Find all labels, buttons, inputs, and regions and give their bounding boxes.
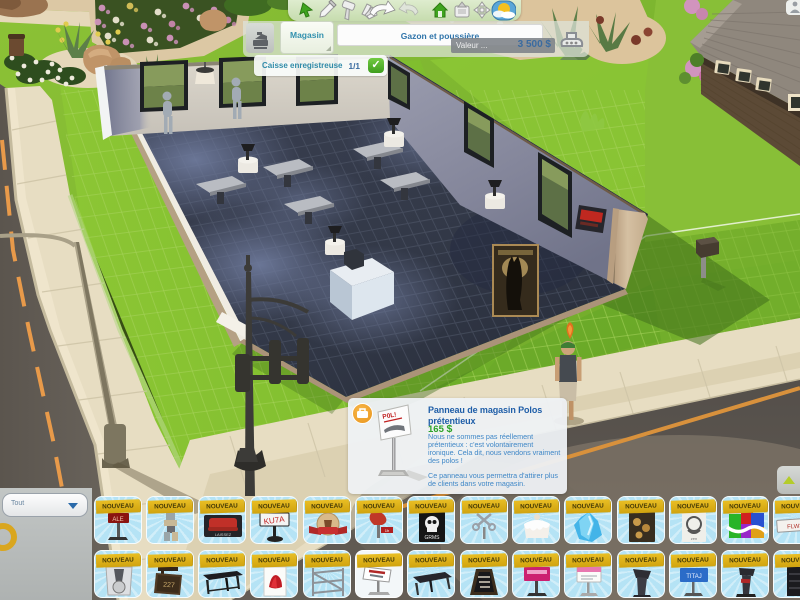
svg-text:ALE: ALE (112, 517, 123, 523)
svg-text:FLW3C: FLW3C (787, 523, 800, 530)
svg-text:GRMS: GRMS (425, 535, 441, 541)
svg-text:227: 227 (163, 582, 175, 590)
svg-text:LAISSEZ: LAISSEZ (215, 532, 232, 537)
svg-text:1h: 1h (385, 528, 389, 533)
svg-text:TITAJ: TITAJ (686, 574, 702, 580)
svg-text:zen: zen (691, 536, 697, 541)
